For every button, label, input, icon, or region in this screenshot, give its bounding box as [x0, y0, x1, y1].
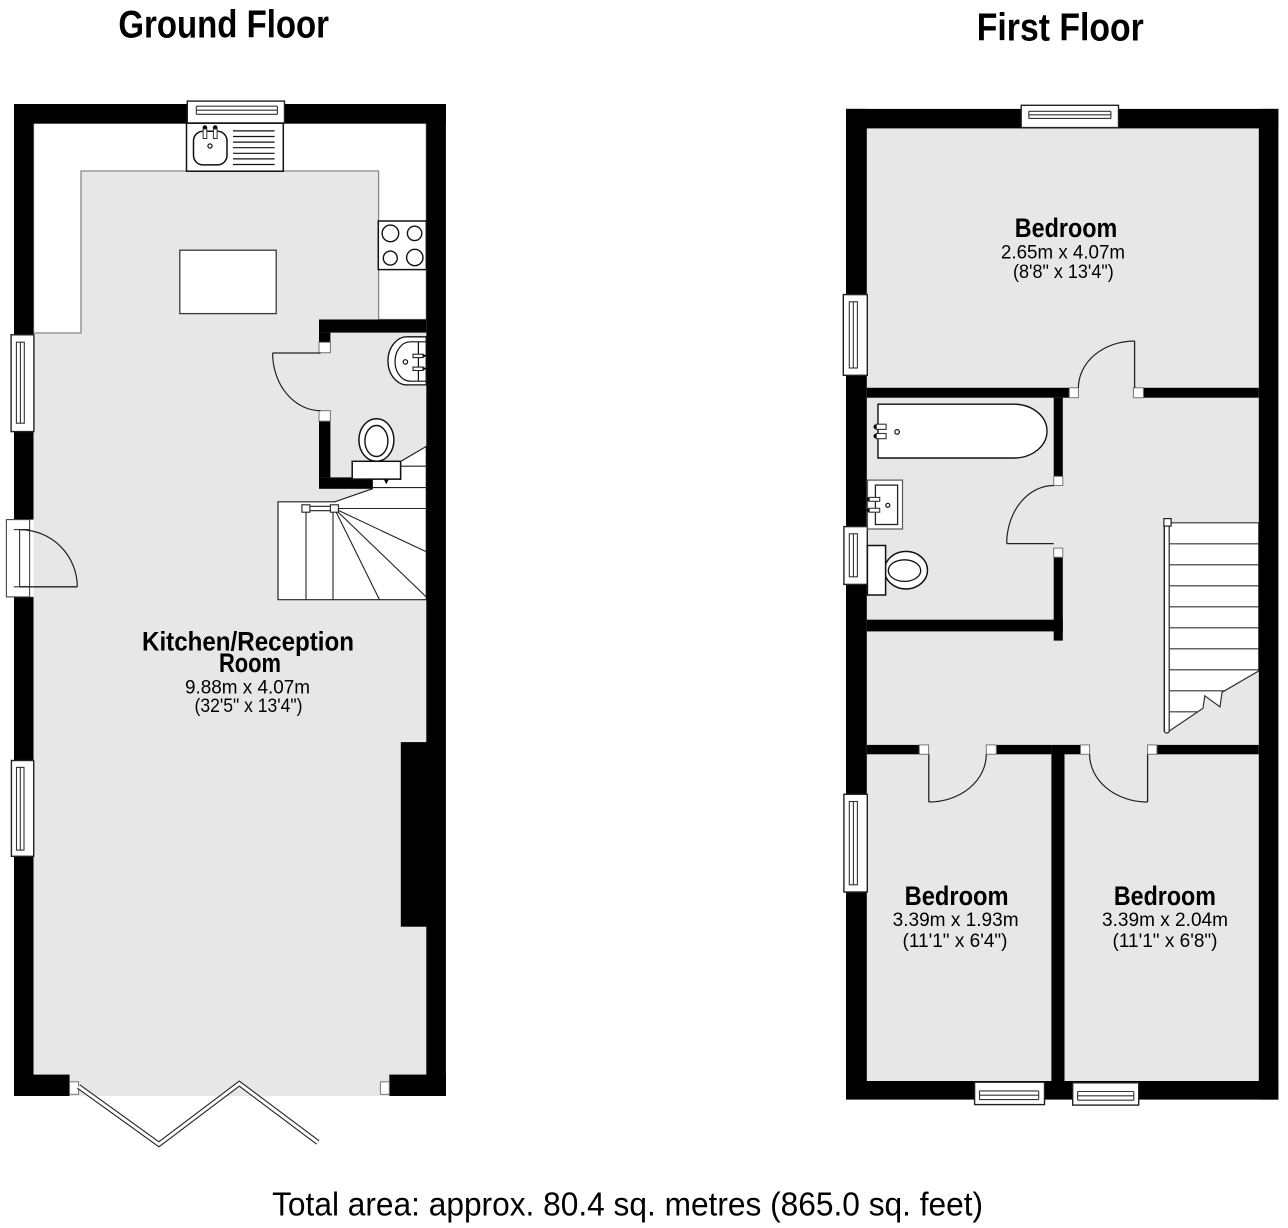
svg-text:2.65m x 4.07m: 2.65m x 4.07m — [1001, 243, 1125, 264]
svg-text:Bedroom: Bedroom — [905, 881, 1009, 911]
svg-text:Ground Floor: Ground Floor — [118, 4, 329, 47]
svg-text:(8'8" x 13'4"): (8'8" x 13'4") — [1013, 262, 1114, 283]
svg-text:Bedroom: Bedroom — [1114, 881, 1216, 911]
svg-text:(11'1" x 6'4"): (11'1" x 6'4") — [903, 931, 1008, 952]
svg-text:Bedroom: Bedroom — [1015, 213, 1118, 243]
svg-text:3.39m x 1.93m: 3.39m x 1.93m — [893, 910, 1019, 931]
svg-text:(11'1" x 6'8"): (11'1" x 6'8") — [1113, 931, 1218, 952]
svg-text:(32'5" x 13'4"): (32'5" x 13'4") — [195, 696, 303, 717]
svg-text:Total area: approx. 80.4 sq. m: Total area: approx. 80.4 sq. metres (865… — [272, 1186, 983, 1223]
svg-text:3.39m x 2.04m: 3.39m x 2.04m — [1102, 910, 1228, 931]
svg-text:First Floor: First Floor — [977, 7, 1144, 50]
svg-text:Room: Room — [219, 648, 281, 678]
